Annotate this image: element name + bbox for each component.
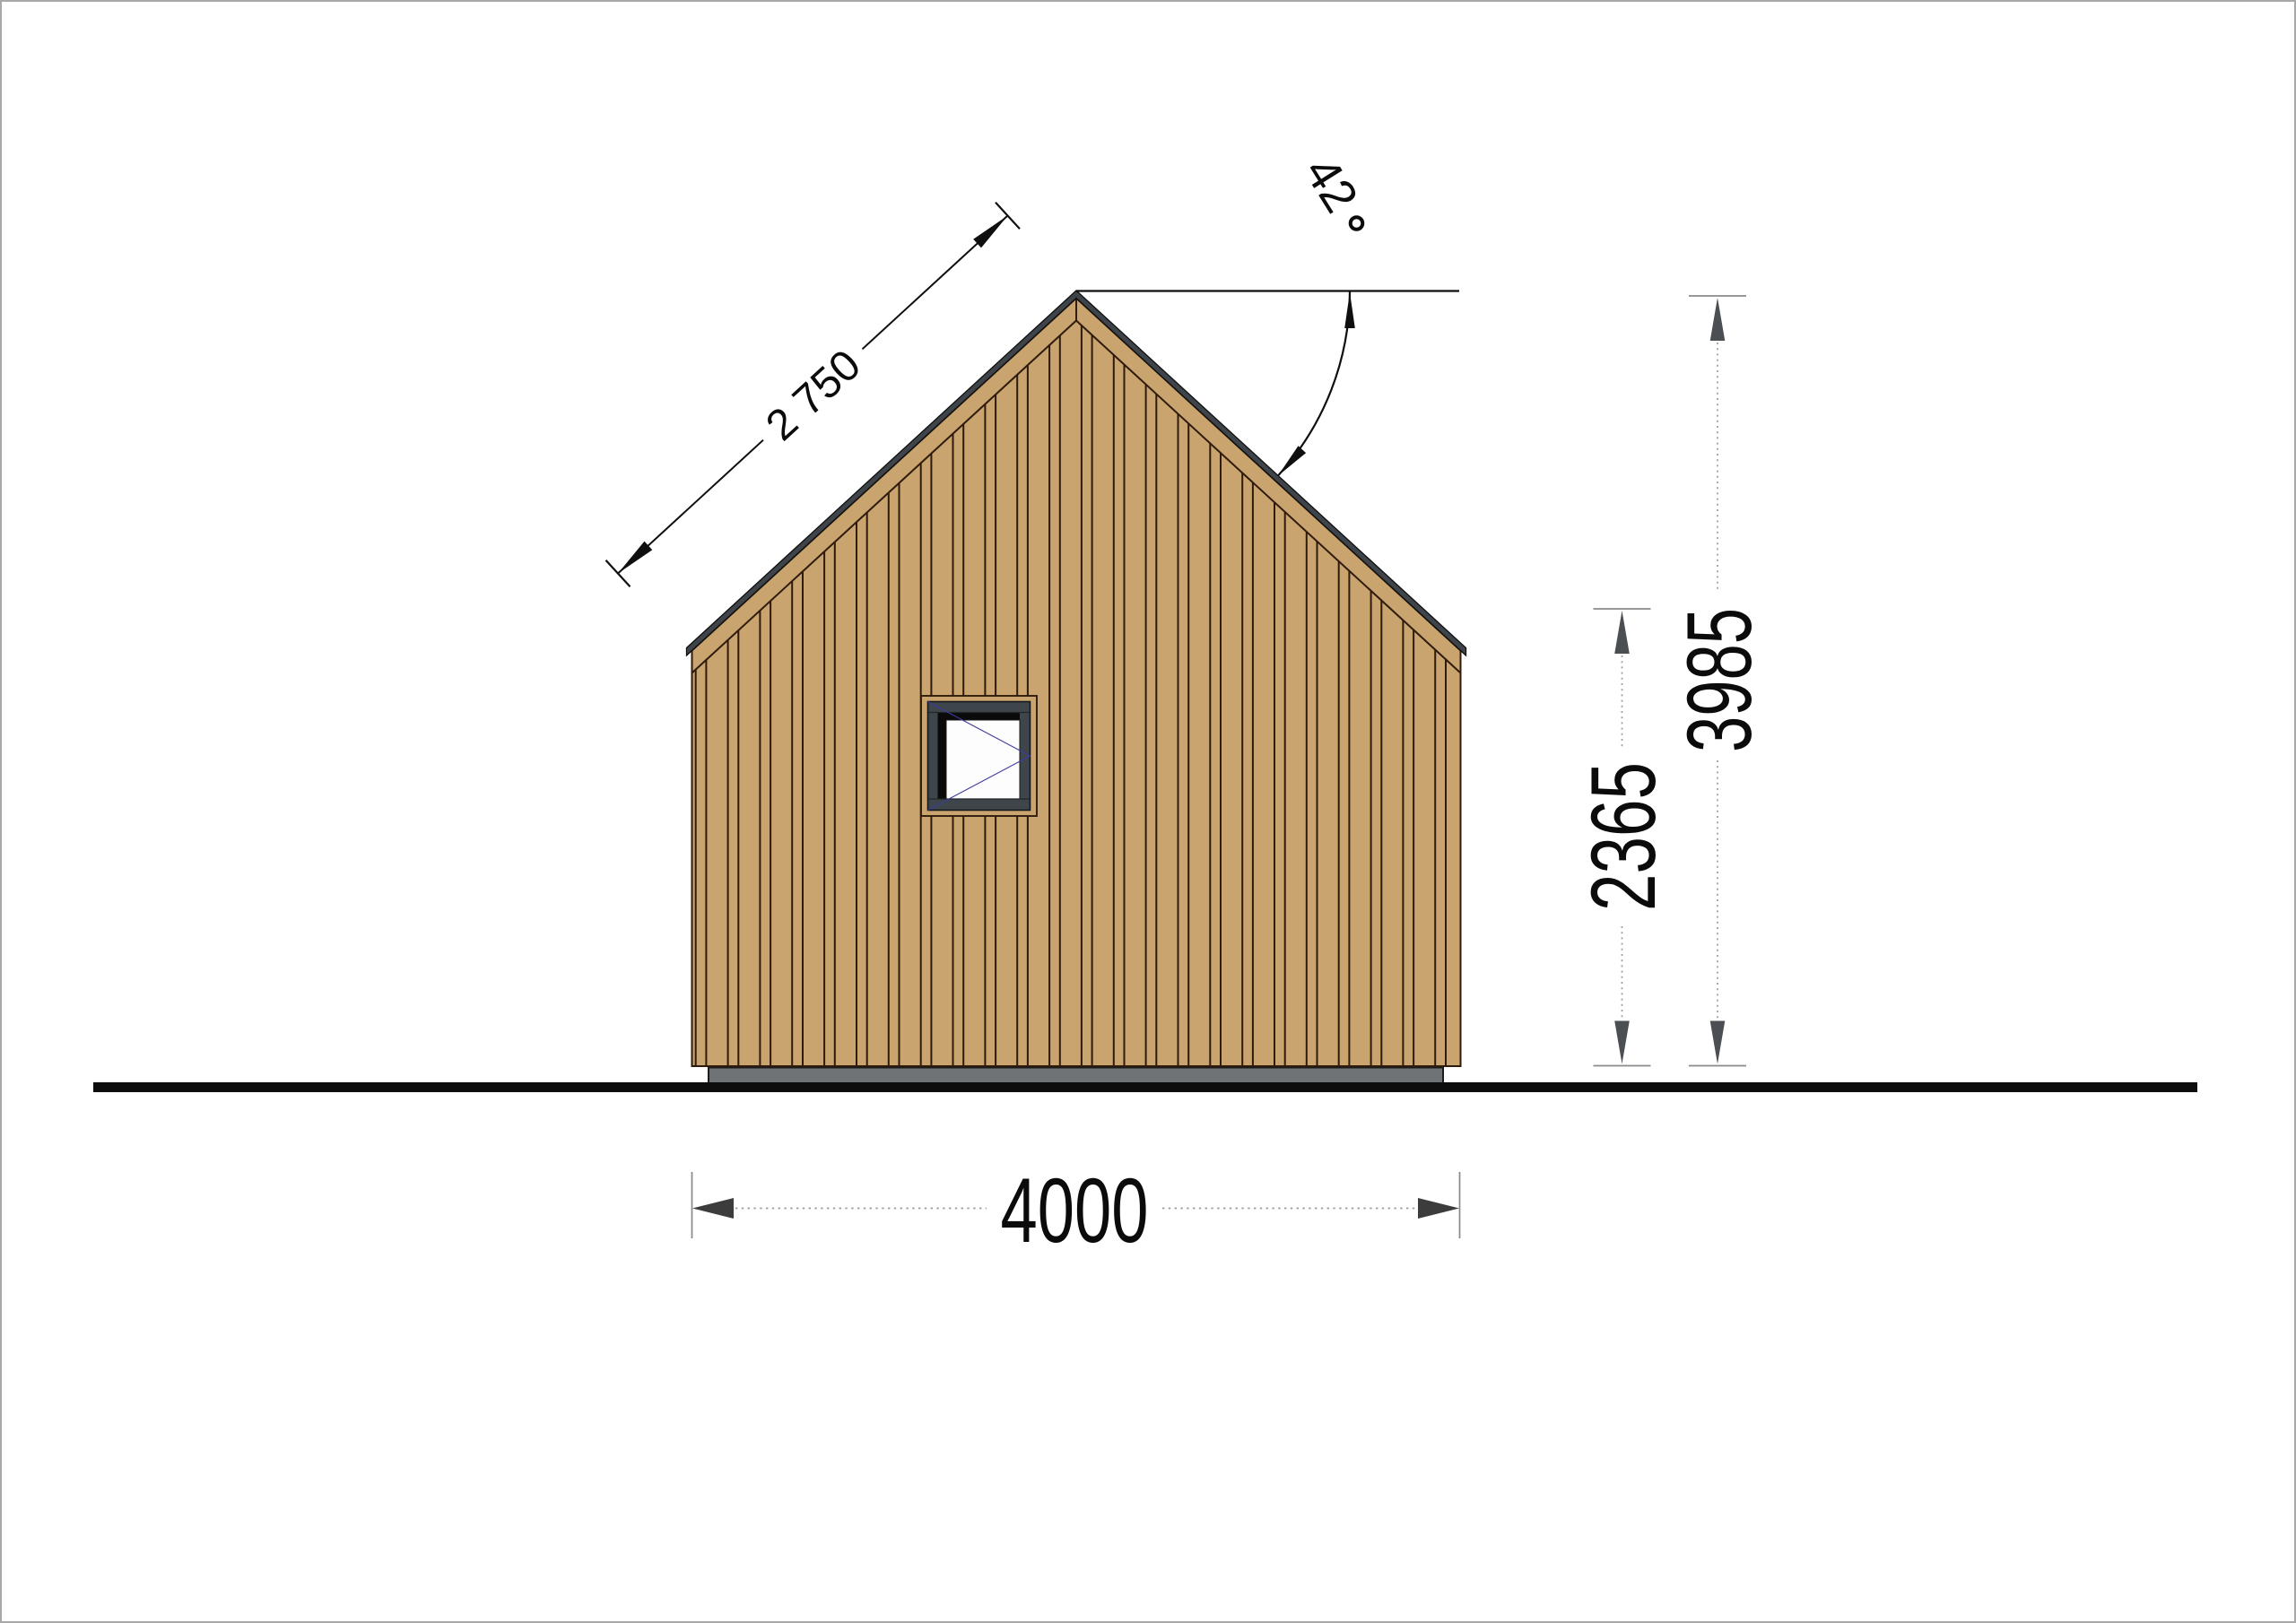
svg-text:3985: 3985 bbox=[1668, 608, 1770, 752]
svg-text:4000: 4000 bbox=[1001, 1159, 1149, 1262]
svg-text:2365: 2365 bbox=[1572, 762, 1674, 911]
